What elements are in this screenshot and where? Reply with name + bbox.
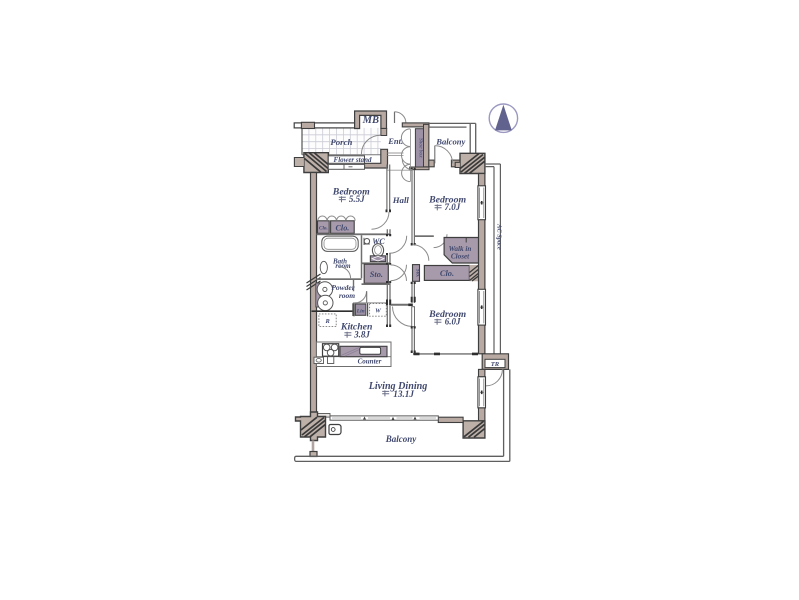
svg-text:Shoe box: Shoe box: [418, 138, 424, 158]
svg-text:Clo.: Clo.: [335, 223, 349, 232]
svg-text:13.1J: 13.1J: [393, 389, 414, 399]
svg-text:Balcony: Balcony: [385, 434, 418, 444]
svg-text:Flower stand: Flower stand: [334, 156, 372, 164]
svg-text:6.0J: 6.0J: [445, 317, 461, 327]
svg-text:Counter: Counter: [358, 357, 382, 365]
svg-text:TR: TR: [491, 361, 500, 368]
svg-text:AC Space: AC Space: [496, 223, 503, 250]
svg-text:Sto.: Sto.: [414, 269, 420, 278]
svg-text:5.5J: 5.5J: [349, 194, 365, 204]
svg-text:Walk in: Walk in: [449, 245, 472, 253]
svg-text:room: room: [335, 262, 351, 270]
svg-text:Sto.: Sto.: [370, 270, 383, 279]
svg-text:Porch: Porch: [330, 137, 352, 147]
svg-text:Ent.: Ent.: [387, 136, 403, 146]
svg-text:R: R: [324, 318, 330, 325]
svg-text:7.0J: 7.0J: [445, 202, 461, 212]
svg-text:Balcony: Balcony: [435, 137, 465, 147]
svg-text:Clo.: Clo.: [440, 269, 454, 278]
svg-text:Hall: Hall: [392, 195, 410, 205]
svg-text:3.8J: 3.8J: [353, 330, 370, 340]
svg-text:room: room: [339, 291, 355, 300]
svg-text:Clo.: Clo.: [319, 226, 328, 232]
svg-text:Lin: Lin: [356, 308, 365, 314]
svg-text:MB: MB: [362, 115, 379, 126]
svg-text:Closet: Closet: [451, 253, 470, 261]
